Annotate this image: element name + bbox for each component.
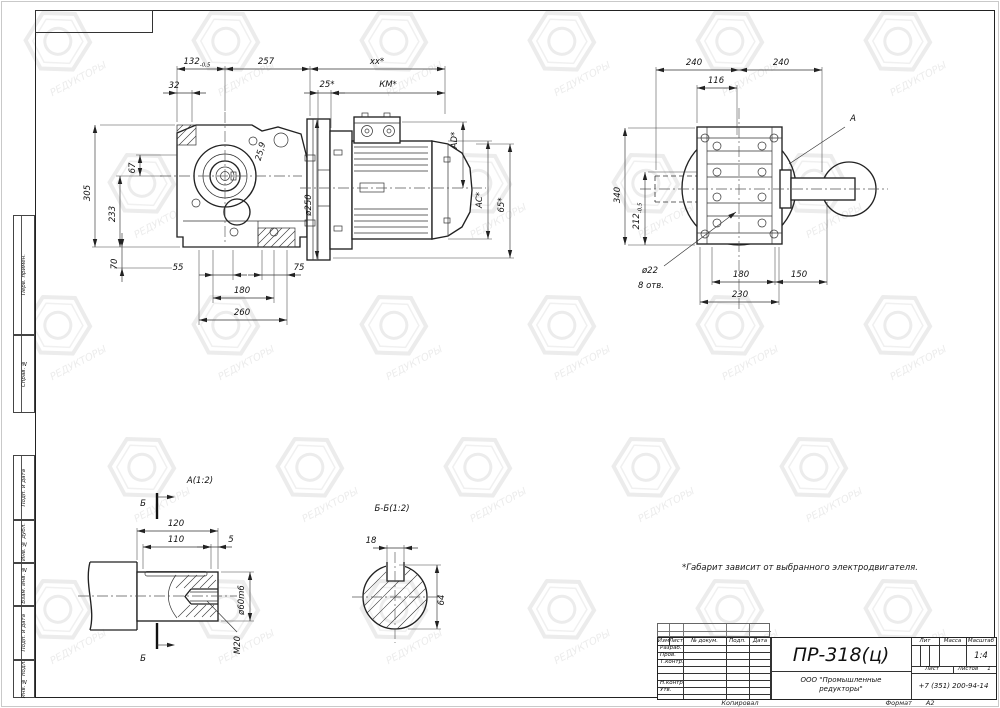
dim-arrow <box>404 546 412 550</box>
dim-text: 260 <box>234 308 250 318</box>
row-tkontr: Т.контр. <box>658 659 685 666</box>
dim-text: A <box>849 114 856 124</box>
dim-text: 180 <box>733 270 749 280</box>
dim-text: 150 <box>791 270 807 280</box>
dim-text: ø22 <box>641 266 658 276</box>
row-prov: Пров. <box>658 652 685 659</box>
dim-text: ø60m6 <box>237 585 247 616</box>
dim-arrow <box>302 67 310 71</box>
dim-arrow <box>205 273 213 277</box>
dim-arrow <box>143 545 151 549</box>
dim-arrow <box>437 91 445 95</box>
col-header-podp: Подп. <box>726 638 749 645</box>
dim-arrow <box>93 239 97 247</box>
dim-text: 212-0,5 <box>632 202 644 229</box>
dim-arrow <box>310 67 318 71</box>
title-block-main: Изм Лист № докум. Подп. Дата Разраб. Про… <box>657 637 997 700</box>
dim-text: 233 <box>108 206 118 222</box>
section-arrow <box>167 495 175 499</box>
dim-arrow <box>486 231 490 239</box>
divider-line <box>726 624 727 638</box>
dim-arrow <box>700 300 708 304</box>
detail-a-view: А(1:2)ББ1201105ø60m6М20 <box>78 476 254 664</box>
dim-arrow <box>138 155 142 163</box>
dim-arrow <box>729 86 737 90</box>
divider-line <box>658 673 771 674</box>
company-phone: +7 (351) 200-94-14 <box>911 673 996 699</box>
divider-line <box>683 624 684 638</box>
row-razrab: Разраб. <box>658 645 685 652</box>
drawing-sheet: РЕДУКТОРЫРЕДУКТОРЫРЕДУКТОРЫРЕДУКТОРЫРЕДУ… <box>0 0 1000 708</box>
dim-text: Б <box>140 499 146 509</box>
divider-line <box>658 631 771 632</box>
divider-line <box>749 638 750 699</box>
dim-arrow <box>767 280 775 284</box>
dim-arrow <box>697 86 705 90</box>
dim-arrow <box>656 68 664 72</box>
dim-text: 8 отв. <box>638 281 664 291</box>
dim-text: AC* <box>475 192 485 209</box>
dim-arrow <box>287 273 295 277</box>
sheets-value: 1 <box>982 666 996 673</box>
divider-line <box>726 638 727 699</box>
side-view: 240240116180150230340212-0,5ø228 отв.A <box>613 58 888 312</box>
format-value: А2 <box>926 699 935 707</box>
dim-arrow <box>254 273 262 277</box>
dim-arrow <box>118 176 122 184</box>
dim-arrow <box>643 237 647 245</box>
dim-arrow <box>177 67 185 71</box>
dim-text: ø250 <box>304 194 314 216</box>
col-header-list: Лист <box>669 638 683 645</box>
col-header-izm: Изм <box>658 638 669 645</box>
dim-text: 240 <box>773 58 789 68</box>
section-b-view: Б-Б(1:2)1864 <box>352 504 447 643</box>
dim-text: 18 <box>366 536 377 546</box>
sheet-label: Лист <box>911 666 953 673</box>
dim-arrow <box>310 91 318 95</box>
gearbox-side-body <box>697 127 782 244</box>
dim-arrow <box>233 273 241 277</box>
dim-arrow <box>279 318 287 322</box>
dim-text: 64 <box>437 595 447 606</box>
dim-text: 5 <box>228 535 233 545</box>
scale-label: Масштаб <box>966 638 996 645</box>
dim-text: AD* <box>450 132 460 150</box>
divider-line <box>658 666 771 667</box>
dim-arrow <box>623 128 627 136</box>
dim-text: А(1:2) <box>186 476 213 486</box>
dim-text: xx* <box>369 57 384 67</box>
dim-arrow <box>771 300 779 304</box>
dim-text: Б <box>140 654 146 664</box>
dim-arrow <box>712 280 720 284</box>
dim-arrow <box>643 172 647 180</box>
footnote: *Габарит зависит от выбранного электродв… <box>682 563 992 573</box>
dim-arrow <box>435 621 439 629</box>
dim-arrow <box>379 546 387 550</box>
dim-text: 116 <box>708 76 725 86</box>
dim-text: 70 <box>110 259 120 270</box>
dim-arrow <box>739 68 747 72</box>
dim-arrow <box>93 125 97 133</box>
dim-arrow <box>218 545 226 549</box>
revision-ext-rows <box>657 623 770 637</box>
format-label: Формат <box>886 699 912 707</box>
title-block: Изм Лист № докум. Подп. Дата Разраб. Про… <box>657 623 995 698</box>
dim-text: 305 <box>83 185 93 201</box>
motor-terminal-box <box>354 117 400 143</box>
dim-text: КМ* <box>379 80 397 90</box>
row-nkontr: Н.контр. <box>658 680 685 687</box>
dim-arrow <box>814 68 822 72</box>
dim-text: 110 <box>168 535 184 545</box>
dim-arrow <box>819 280 827 284</box>
sheets-label: Листов <box>954 666 982 673</box>
front-view: 132-0,5257xx*3225*КМ*5575180260305233677… <box>83 57 514 325</box>
divider-line <box>929 645 930 666</box>
dim-arrow <box>169 91 177 95</box>
dim-text: М20 <box>233 636 243 654</box>
dim-arrow <box>435 565 439 573</box>
dim-arrow <box>213 296 221 300</box>
dim-text: 180 <box>234 286 250 296</box>
dim-arrow <box>331 91 339 95</box>
dim-text: 257 <box>258 57 275 67</box>
motor-rear <box>432 141 472 239</box>
scale-value: 1:4 <box>966 645 996 666</box>
col-header-docnum: № докум. <box>683 638 726 645</box>
shaft-end <box>137 572 218 621</box>
dim-text: 32 <box>169 81 180 91</box>
motor-body <box>352 141 432 239</box>
row-utv: Утв. <box>658 687 685 694</box>
col-header-data: Дата <box>749 638 771 645</box>
dim-arrow <box>266 296 274 300</box>
company-line2: редукторы" <box>819 685 863 694</box>
lit-label: Лит <box>911 638 939 645</box>
dim-text: 240 <box>686 58 702 68</box>
dim-arrow <box>248 613 252 621</box>
leader-line <box>789 127 845 164</box>
divider-line <box>920 645 921 666</box>
dim-text: 75 <box>294 263 305 273</box>
section-arrow <box>167 643 175 647</box>
divider-line <box>658 694 771 695</box>
company-line1: ООО "Промышленные <box>801 676 882 685</box>
dim-arrow <box>217 67 225 71</box>
document-number: ПР-318(ц) <box>771 638 911 671</box>
divider-line <box>669 624 670 638</box>
format-field: Формат А2 <box>850 699 970 707</box>
dim-arrow <box>120 268 124 276</box>
dim-arrow <box>137 529 145 533</box>
dim-text: 230 <box>732 290 748 300</box>
dim-text: 25* <box>319 80 334 90</box>
dim-arrow <box>486 141 490 149</box>
copied-label: Копировал <box>690 699 790 707</box>
dim-text: 65* <box>497 197 507 212</box>
company-name: ООО "Промышленные редукторы" <box>771 671 911 699</box>
dim-text: 132-0,5 <box>184 57 211 69</box>
mass-label: Масса <box>939 638 966 645</box>
dim-text: 67 <box>128 162 138 173</box>
dim-arrow <box>731 68 739 72</box>
dim-arrow <box>199 318 207 322</box>
technical-drawing: 132-0,5257xx*3225*КМ*5575180260305233677… <box>0 0 1000 708</box>
dim-arrow <box>508 144 512 152</box>
dim-arrow <box>192 91 200 95</box>
dim-arrow <box>138 168 142 176</box>
dim-text: 120 <box>168 519 184 529</box>
dim-arrow <box>203 545 211 549</box>
dim-arrow <box>461 122 465 130</box>
dim-arrow <box>437 67 445 71</box>
dim-arrow <box>248 572 252 580</box>
divider-line <box>749 624 750 638</box>
dim-text: 340 <box>613 187 623 203</box>
dim-text: Б-Б(1:2) <box>374 504 409 514</box>
dim-arrow <box>225 67 233 71</box>
dim-arrow <box>623 237 627 245</box>
dim-text: 55 <box>173 263 184 273</box>
dim-arrow <box>210 529 218 533</box>
dim-arrow <box>508 250 512 258</box>
